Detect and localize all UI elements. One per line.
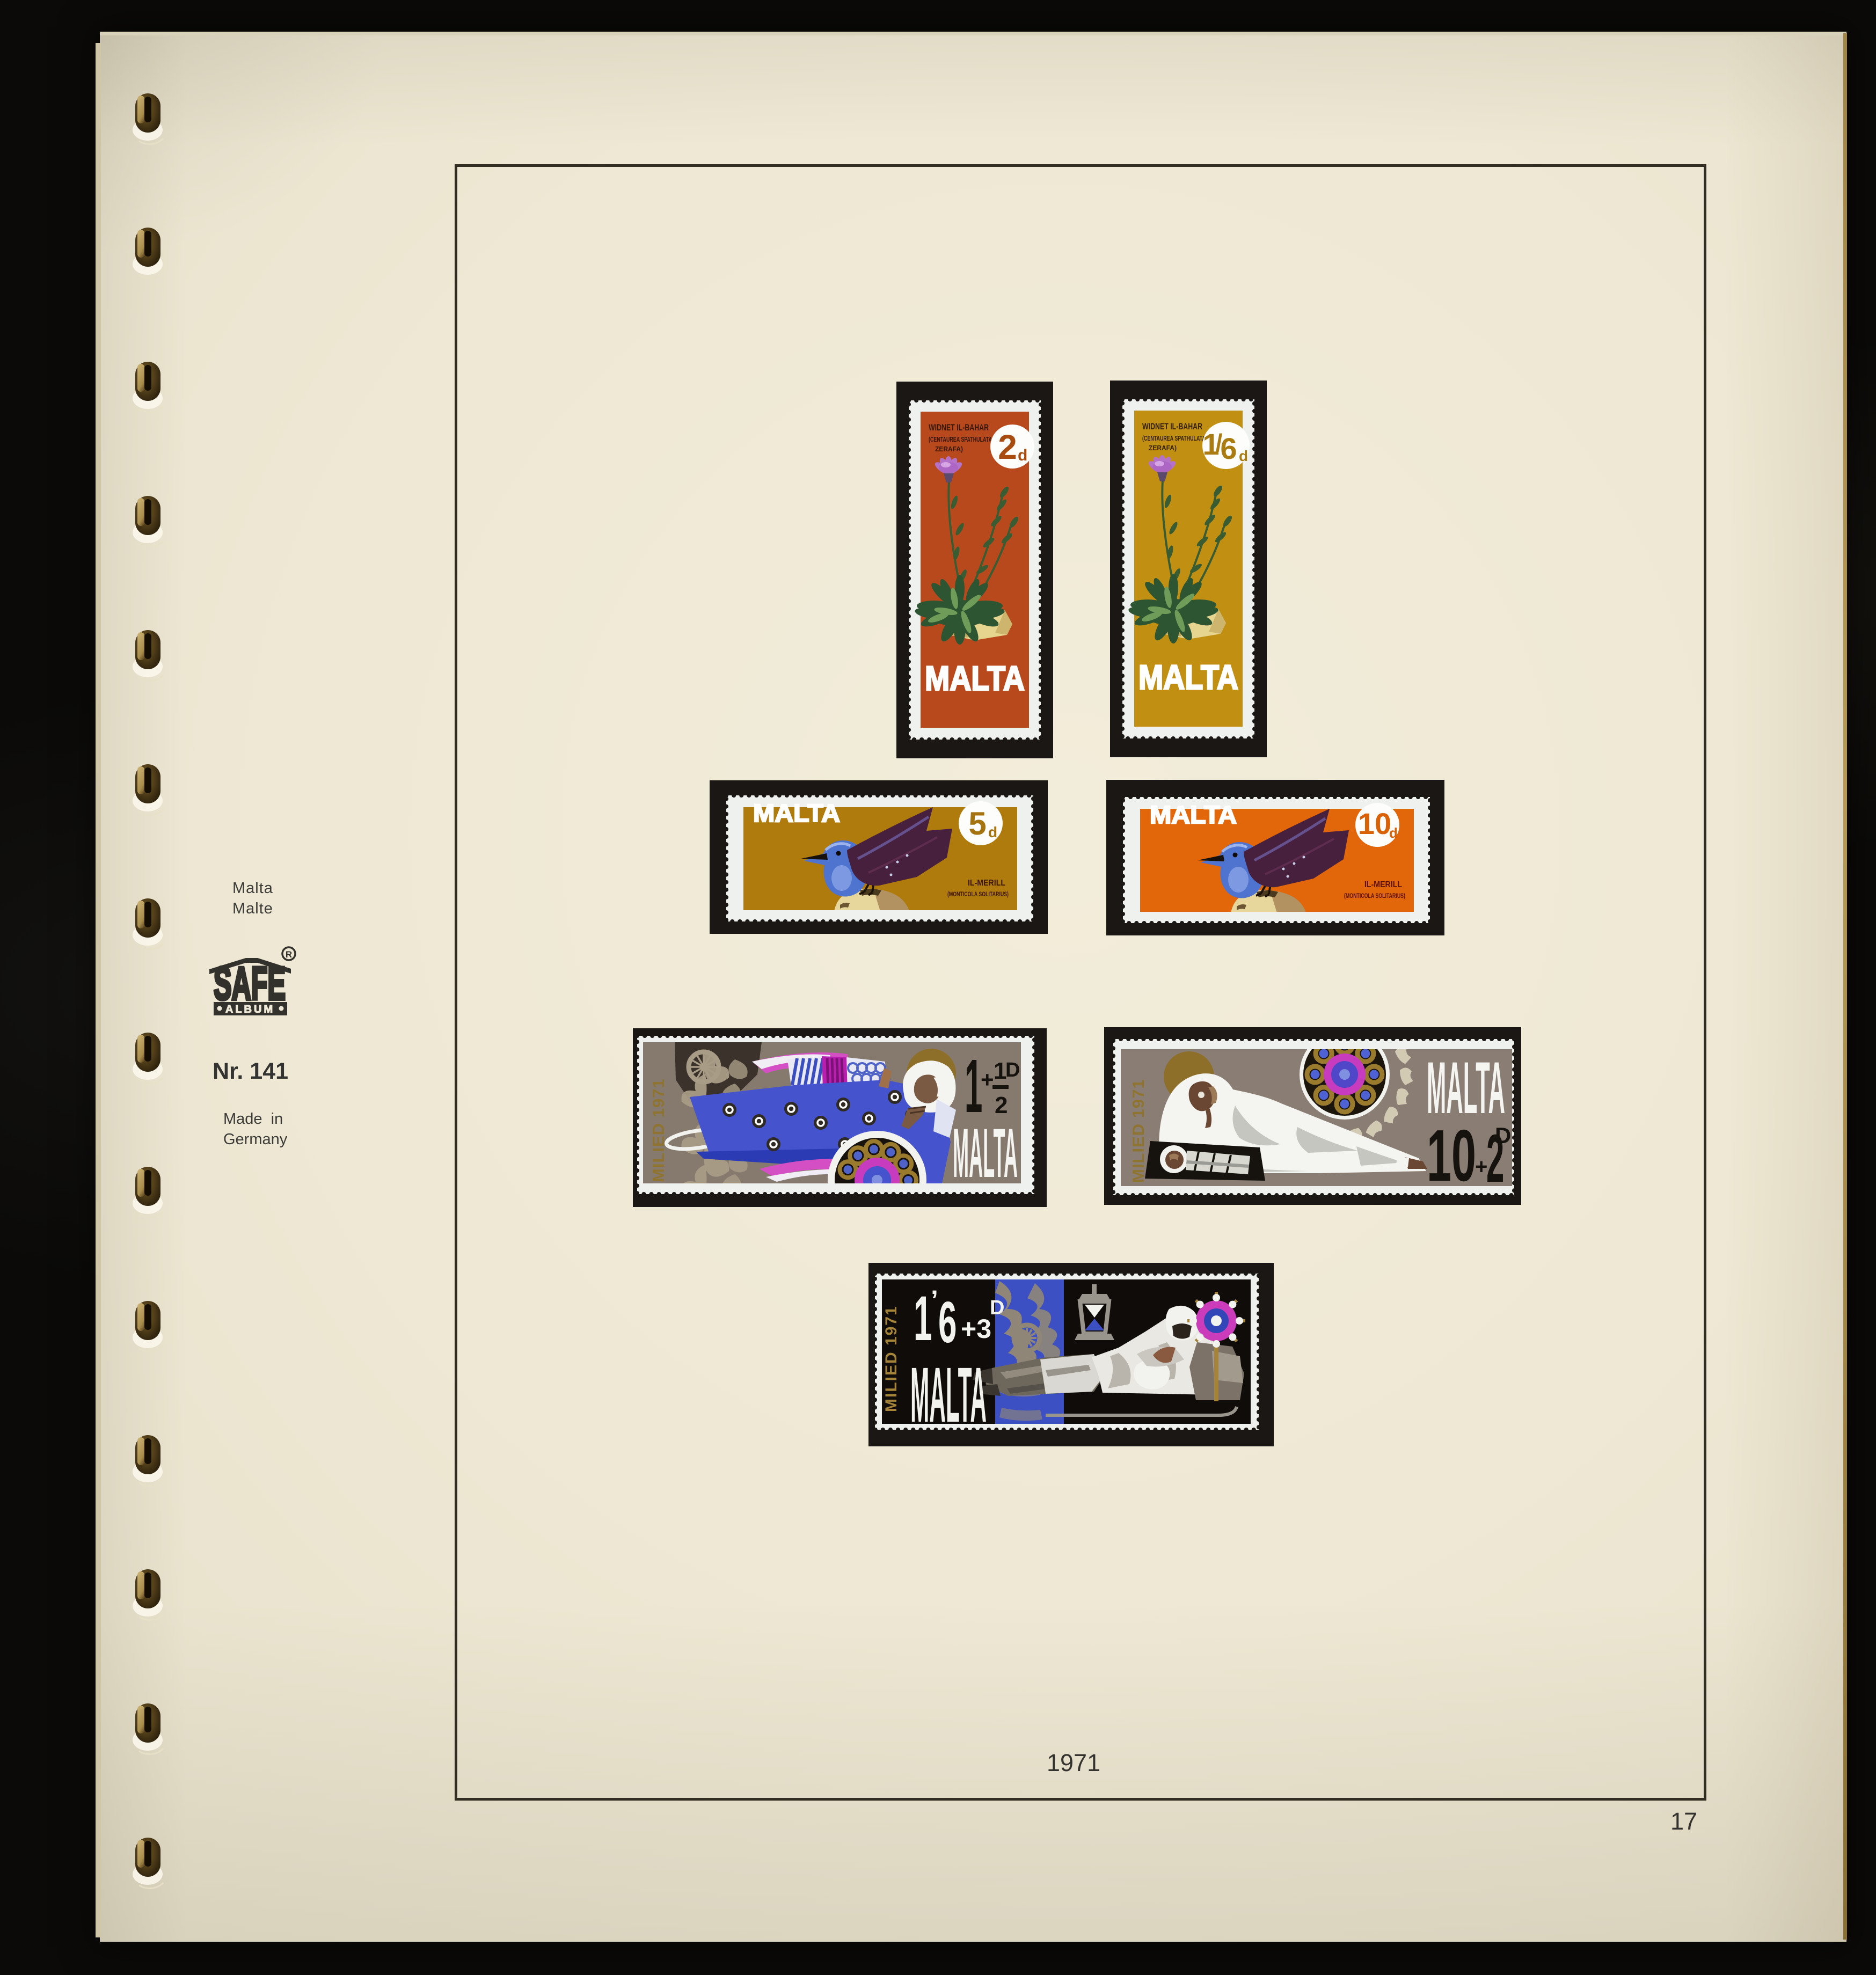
svg-text:IL-MERILL: IL-MERILL [968, 879, 1005, 888]
svg-text:D: D [990, 1297, 1004, 1319]
svg-text:+: + [981, 1067, 994, 1092]
svg-text:6: 6 [938, 1290, 957, 1355]
svg-text:d: d [1018, 447, 1027, 464]
svg-text:5: 5 [968, 806, 986, 842]
svg-text:(CENTAUREA SPATHULATA: (CENTAUREA SPATHULATA [929, 435, 992, 443]
svg-text:+3: +3 [961, 1314, 991, 1344]
svg-text:MILIED 1971: MILIED 1971 [649, 1078, 668, 1182]
svg-text:MALTA: MALTA [1138, 658, 1238, 697]
svg-text:ZERAFA): ZERAFA) [1149, 444, 1177, 452]
svg-text:MALTA: MALTA [953, 1114, 1018, 1192]
svg-text:MALTA: MALTA [925, 659, 1025, 698]
svg-text:ALBUM: ALBUM [225, 1004, 275, 1015]
svg-text:d: d [1389, 825, 1398, 841]
svg-text:10: 10 [1358, 807, 1391, 840]
svg-text:D: D [1495, 1123, 1511, 1148]
svg-text:MILIED 1971: MILIED 1971 [882, 1305, 900, 1412]
svg-text:SAFE: SAFE [214, 958, 286, 1010]
svg-text:(MONTICOLA SOLITARIUS): (MONTICOLA SOLITARIUS) [947, 890, 1009, 898]
svg-text:6: 6 [1220, 431, 1237, 465]
svg-text:IL-MERILL: IL-MERILL [1364, 880, 1402, 889]
svg-text:d: d [988, 824, 997, 840]
svg-text:R: R [286, 949, 292, 960]
svg-text:WIDNET IL-BAHAR: WIDNET IL-BAHAR [929, 422, 989, 433]
svg-text:10: 10 [1427, 1115, 1476, 1197]
svg-text:(MONTICOLA SOLITARIUS): (MONTICOLA SOLITARIUS) [1344, 892, 1405, 899]
svg-text:(CENTAUREA SPATHULATA: (CENTAUREA SPATHULATA [1142, 434, 1206, 442]
svg-text:d: d [1239, 448, 1248, 464]
svg-text:1: 1 [994, 1058, 1006, 1084]
svg-text:D: D [1005, 1059, 1020, 1081]
svg-text:’: ’ [931, 1285, 938, 1315]
svg-text:1: 1 [914, 1283, 932, 1354]
svg-text:MILIED 1971: MILIED 1971 [1129, 1079, 1148, 1183]
svg-text:ZERAFA): ZERAFA) [935, 445, 963, 453]
svg-text:MALTA: MALTA [1150, 801, 1237, 829]
svg-text:2: 2 [998, 428, 1017, 466]
svg-text:MALTA: MALTA [753, 799, 840, 827]
svg-text:+: + [1475, 1155, 1487, 1179]
svg-text:WIDNET IL-BAHAR: WIDNET IL-BAHAR [1142, 421, 1202, 431]
